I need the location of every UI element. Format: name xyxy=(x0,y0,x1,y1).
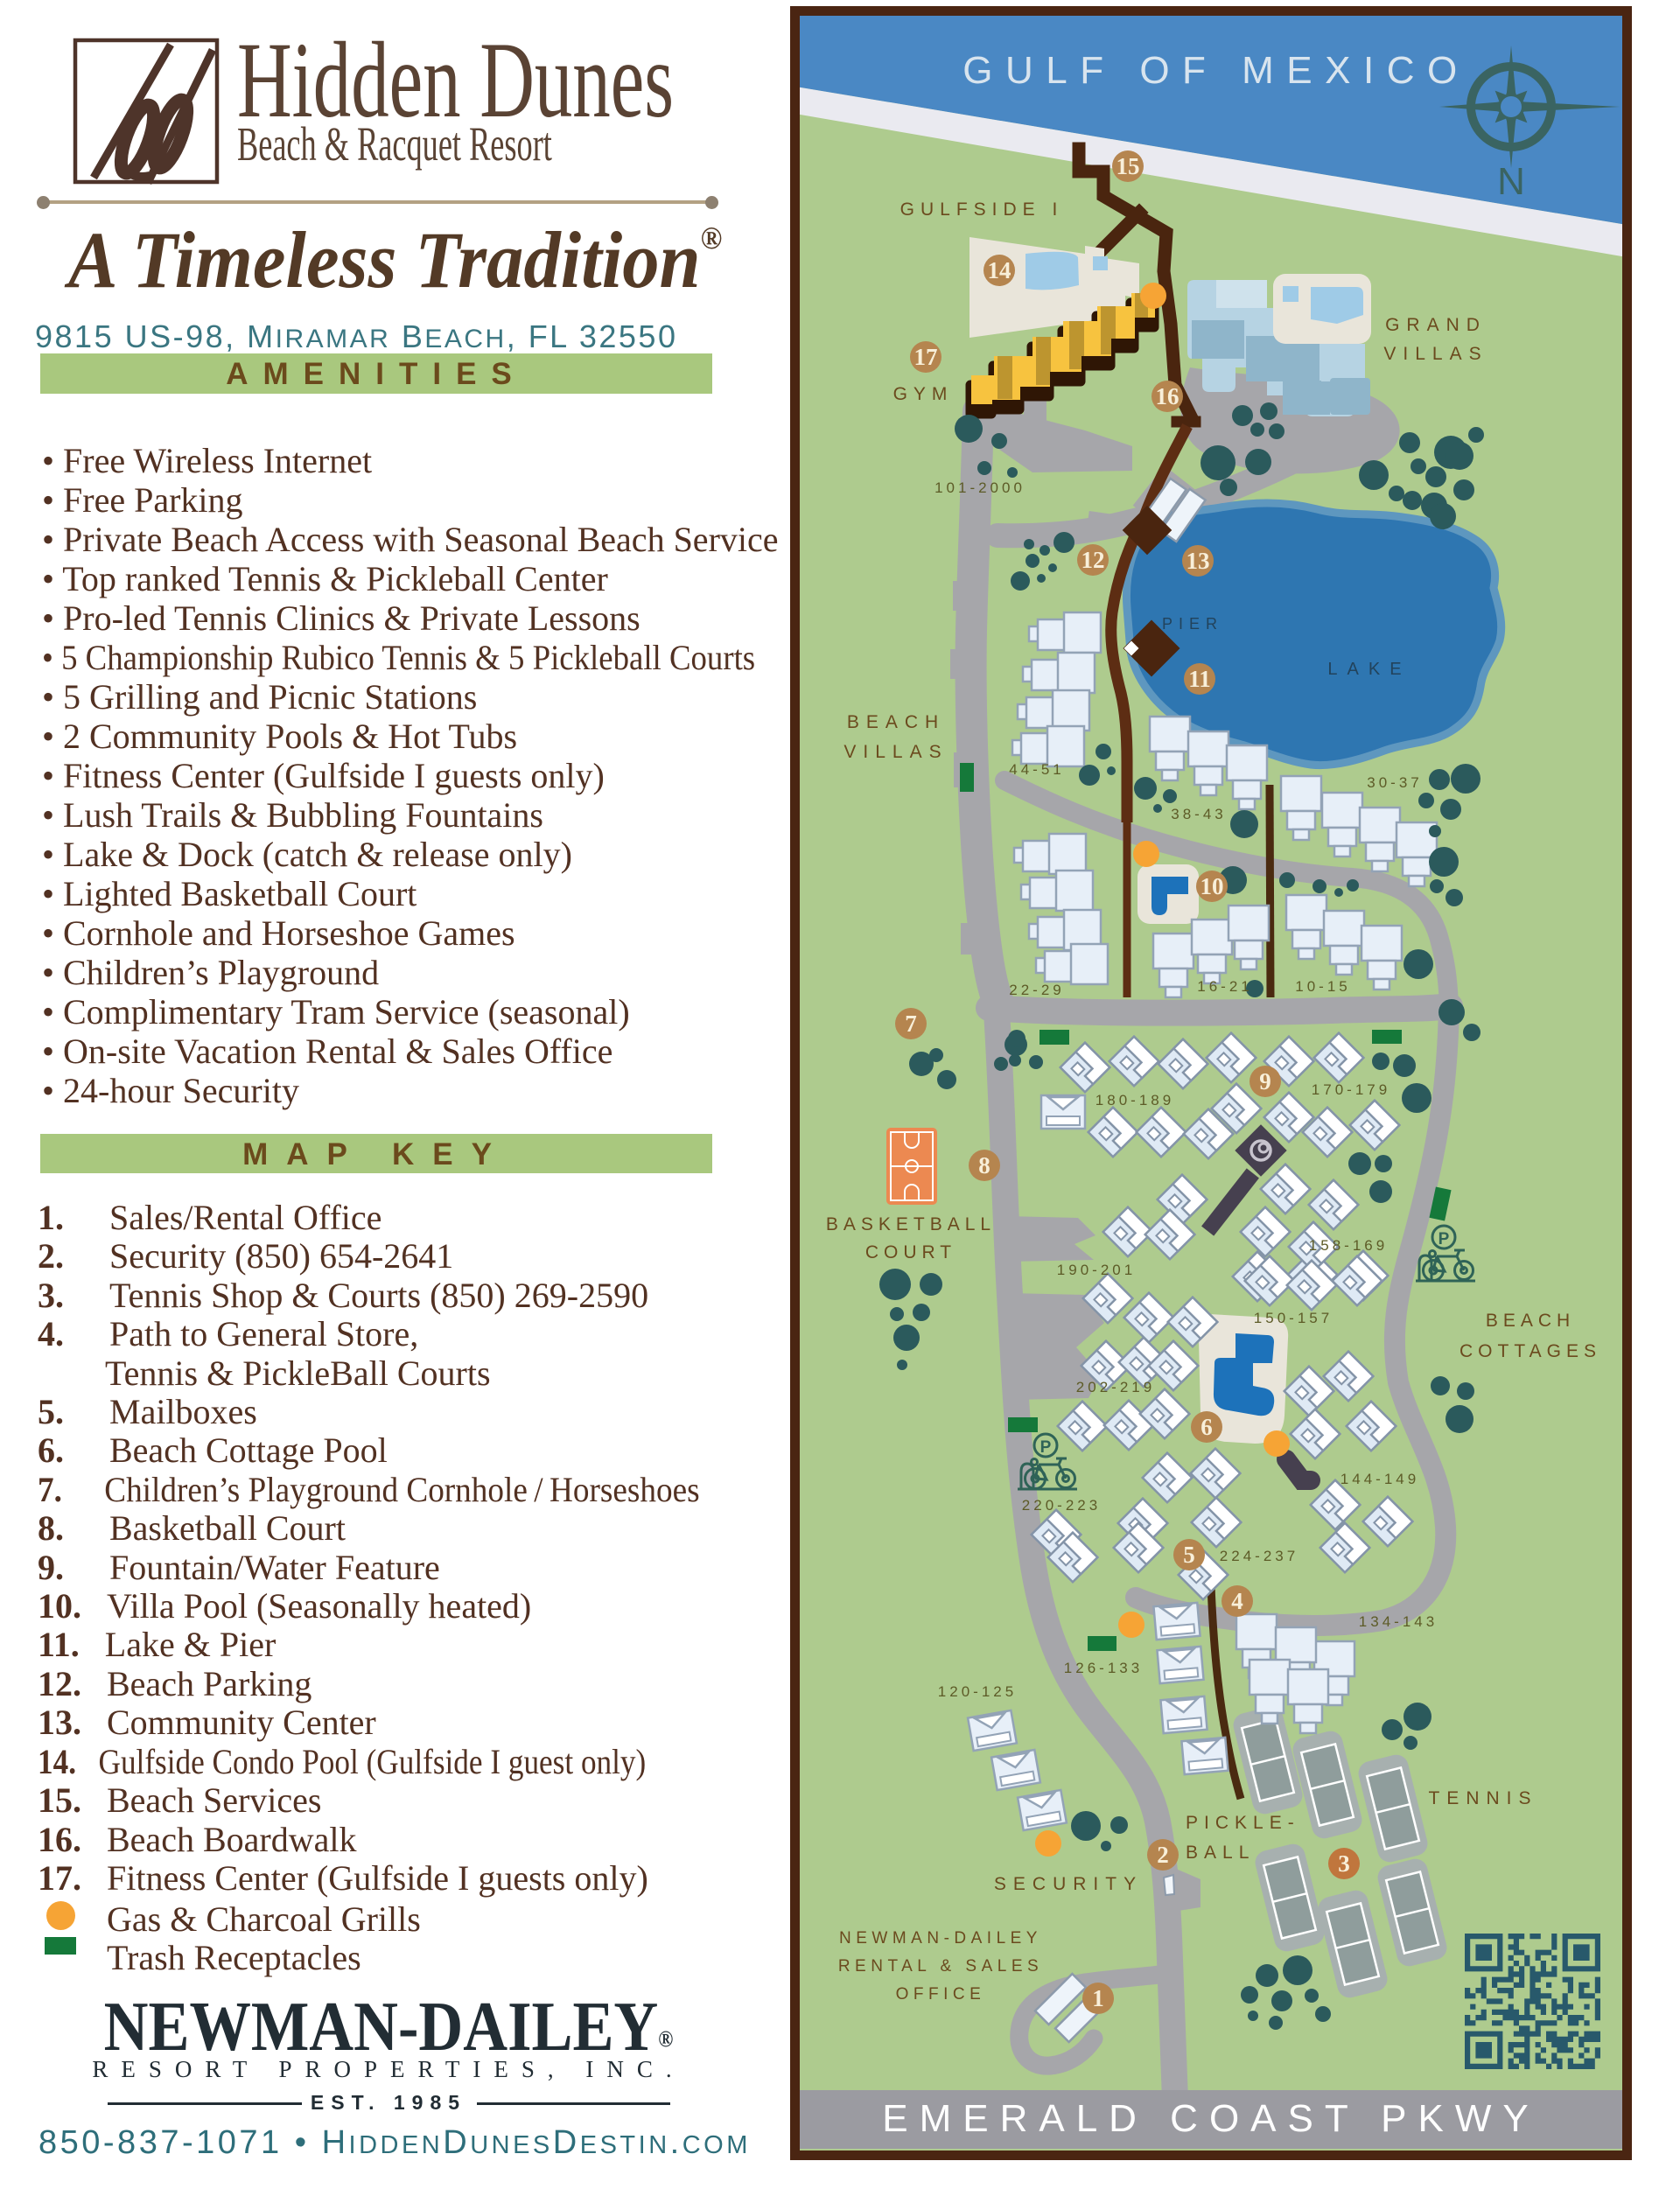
svg-text:170-179: 170-179 xyxy=(1312,1081,1390,1098)
svg-text:5: 5 xyxy=(1183,1542,1195,1568)
svg-text:BEACH: BEACH xyxy=(847,712,945,732)
svg-text:4: 4 xyxy=(1231,1588,1243,1614)
svg-text:PIER: PIER xyxy=(1162,615,1223,633)
svg-text:PICKLE-: PICKLE- xyxy=(1186,1813,1300,1833)
svg-text:BEACH: BEACH xyxy=(1486,1311,1575,1331)
svg-text:9: 9 xyxy=(1259,1068,1271,1095)
svg-text:NEWMAN-DAILEY: NEWMAN-DAILEY xyxy=(839,1929,1042,1948)
svg-text:16: 16 xyxy=(1156,383,1179,409)
svg-text:14: 14 xyxy=(988,257,1011,283)
svg-text:N: N xyxy=(1497,160,1525,203)
svg-text:GRAND: GRAND xyxy=(1385,315,1487,335)
svg-text:126-133: 126-133 xyxy=(1064,1660,1143,1676)
svg-text:GYM: GYM xyxy=(893,384,954,404)
svg-text:SECURITY: SECURITY xyxy=(994,1874,1143,1894)
svg-text:134-143: 134-143 xyxy=(1359,1613,1438,1630)
svg-text:7: 7 xyxy=(905,1011,917,1037)
svg-text:144-149: 144-149 xyxy=(1340,1471,1419,1487)
svg-text:44-51: 44-51 xyxy=(1009,761,1064,778)
svg-text:180-189: 180-189 xyxy=(1095,1092,1174,1108)
svg-text:LAKE: LAKE xyxy=(1327,660,1410,679)
svg-text:220-223: 220-223 xyxy=(1022,1497,1101,1514)
svg-text:P: P xyxy=(1040,1438,1052,1457)
svg-text:1: 1 xyxy=(1092,1985,1104,2011)
svg-text:158-169: 158-169 xyxy=(1309,1237,1388,1254)
svg-text:202-219: 202-219 xyxy=(1076,1379,1155,1395)
svg-text:8: 8 xyxy=(978,1152,990,1178)
svg-text:COTTAGES: COTTAGES xyxy=(1459,1341,1601,1361)
svg-text:COURT: COURT xyxy=(865,1242,956,1262)
svg-text:3: 3 xyxy=(1338,1850,1350,1877)
svg-text:13: 13 xyxy=(1186,548,1210,574)
svg-text:120-125: 120-125 xyxy=(938,1683,1017,1700)
svg-text:30-37: 30-37 xyxy=(1367,774,1422,791)
svg-text:GULF OF MEXICO: GULF OF MEXICO xyxy=(962,49,1469,92)
svg-text:15: 15 xyxy=(1116,153,1140,179)
svg-text:11: 11 xyxy=(1188,666,1211,692)
svg-text:EMERALD COAST PKWY: EMERALD COAST PKWY xyxy=(882,2097,1540,2140)
svg-text:10-15: 10-15 xyxy=(1295,978,1350,995)
svg-text:TENNIS: TENNIS xyxy=(1428,1788,1537,1808)
svg-text:190-201: 190-201 xyxy=(1057,1262,1136,1278)
svg-text:17: 17 xyxy=(914,344,938,370)
svg-text:101-2000: 101-2000 xyxy=(934,479,1025,496)
svg-text:GULFSIDE I: GULFSIDE I xyxy=(900,199,1064,220)
svg-text:VILLAS: VILLAS xyxy=(1383,344,1487,364)
svg-text:BASKETBALL: BASKETBALL xyxy=(826,1214,996,1234)
svg-text:22-29: 22-29 xyxy=(1009,982,1064,998)
svg-text:2: 2 xyxy=(1157,1842,1169,1868)
svg-text:12: 12 xyxy=(1081,547,1105,573)
svg-text:RENTAL & SALES: RENTAL & SALES xyxy=(838,1957,1043,1976)
svg-text:P: P xyxy=(1438,1230,1450,1248)
svg-text:OFFICE: OFFICE xyxy=(896,1985,986,2004)
svg-text:10: 10 xyxy=(1200,873,1224,899)
svg-text:BALL: BALL xyxy=(1186,1843,1255,1863)
svg-text:150-157: 150-157 xyxy=(1254,1310,1333,1326)
svg-text:6: 6 xyxy=(1200,1414,1213,1440)
svg-text:224-237: 224-237 xyxy=(1220,1548,1298,1564)
svg-text:VILLAS: VILLAS xyxy=(843,742,948,762)
svg-text:16-21: 16-21 xyxy=(1197,978,1252,995)
svg-text:38-43: 38-43 xyxy=(1171,806,1226,822)
